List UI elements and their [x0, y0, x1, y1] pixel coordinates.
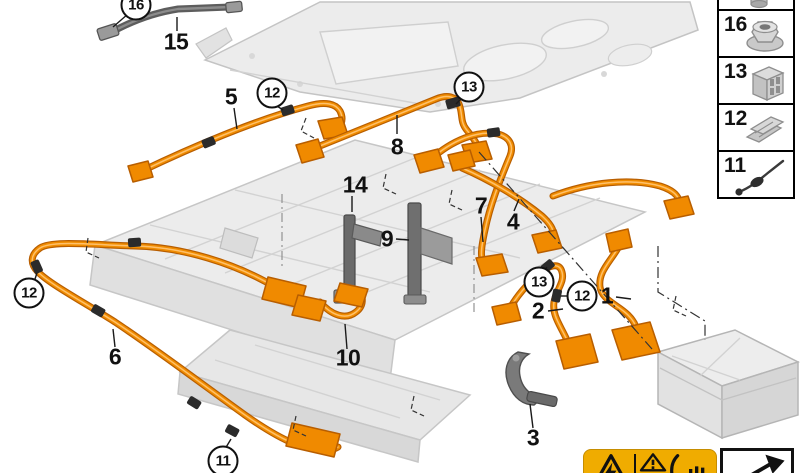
legend-item-12[interactable]: 12	[717, 103, 795, 152]
diagram-artwork: .co{stroke:#B85E00;stroke-width:7;fill:n…	[0, 0, 800, 473]
bowden-cable-icon	[731, 156, 789, 198]
callout-15[interactable]: 15	[164, 31, 189, 54]
callout-1[interactable]: 1	[601, 285, 613, 308]
safety-warning-panel	[583, 449, 717, 473]
callout-9[interactable]: 9	[381, 228, 393, 251]
callout-2[interactable]: 2	[532, 300, 544, 323]
callout-12-left[interactable]: 12	[14, 278, 45, 309]
bracket-3	[506, 352, 558, 407]
connector-housing-icon	[743, 62, 789, 104]
callout-10[interactable]: 10	[336, 347, 361, 370]
callout-8[interactable]: 8	[391, 136, 403, 159]
callout-5[interactable]: 5	[225, 86, 237, 109]
removal-instruction-panel	[720, 448, 794, 473]
callout-14[interactable]: 14	[343, 174, 368, 197]
callout-4[interactable]: 4	[507, 211, 519, 234]
callout-12-top[interactable]: 12	[257, 78, 288, 109]
legend-item-16[interactable]: 16	[717, 9, 795, 58]
callout-13-top[interactable]: 13	[454, 72, 485, 103]
callout-7[interactable]: 7	[475, 195, 487, 218]
retaining-clip-icon	[739, 109, 789, 151]
module-box	[658, 330, 798, 438]
callout-13-right[interactable]: 13	[524, 267, 555, 298]
parts-legend: 16 13 12	[717, 0, 795, 199]
legend-item-13[interactable]: 13	[717, 56, 795, 105]
callout-6[interactable]: 6	[109, 346, 121, 369]
flange-nut-icon	[741, 15, 789, 57]
hand-wait-warning-icon	[668, 453, 714, 473]
parts-diagram-canvas: .co{stroke:#B85E00;stroke-width:7;fill:n…	[0, 0, 800, 473]
removal-arrow-icon	[723, 451, 791, 473]
callout-3[interactable]: 3	[527, 427, 539, 450]
legend-item-11[interactable]: 11	[717, 150, 795, 199]
callout-11[interactable]: 11	[208, 446, 239, 473]
divider	[634, 454, 636, 473]
high-voltage-warning-icon	[590, 453, 632, 473]
read-manual-warning-icon	[638, 453, 668, 473]
callout-12-right[interactable]: 12	[567, 281, 598, 312]
